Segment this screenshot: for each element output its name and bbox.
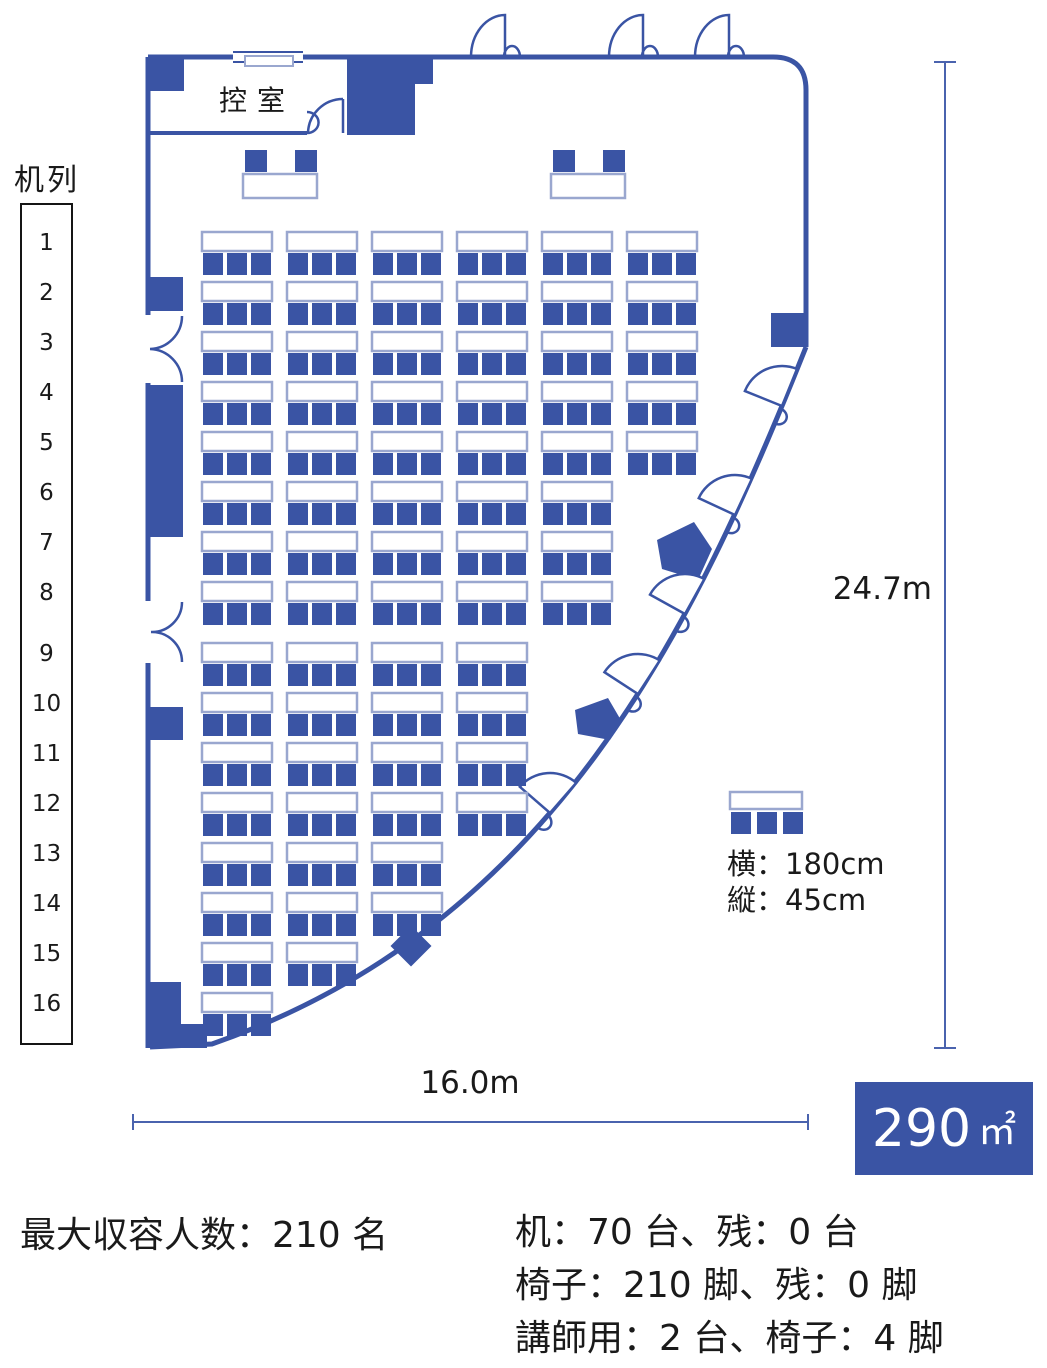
- desk-table: [287, 232, 357, 251]
- desk-chair: [567, 603, 587, 625]
- window-icon: [233, 52, 303, 66]
- desk-chair: [676, 453, 696, 475]
- desk-chair: [203, 353, 223, 375]
- desk-table: [202, 532, 272, 551]
- desk-table: [202, 993, 272, 1012]
- desk-chair: [251, 603, 271, 625]
- desk-chair: [482, 353, 502, 375]
- desk-chair: [288, 764, 308, 786]
- desk-chair: [312, 714, 332, 736]
- desk-chair: [506, 714, 526, 736]
- left-door-2-icon: [151, 602, 182, 662]
- desk-chair: [288, 453, 308, 475]
- desk-chair: [421, 453, 441, 475]
- desk-table: [287, 582, 357, 601]
- area-unit: ㎡: [978, 1112, 1016, 1150]
- desk-chair: [251, 814, 271, 836]
- desk-chair: [397, 814, 417, 836]
- desk-chair: [251, 453, 271, 475]
- desk-chair: [421, 764, 441, 786]
- desk-chair: [421, 403, 441, 425]
- lecturer-desk-2: [551, 150, 625, 198]
- desk-chair: [397, 353, 417, 375]
- desk-table: [372, 432, 442, 451]
- desk-row-number: 15: [22, 940, 71, 968]
- desk-chair: [251, 664, 271, 686]
- desk-chair: [676, 353, 696, 375]
- desk-table: [372, 643, 442, 662]
- desk-chair: [482, 603, 502, 625]
- desk-chair: [421, 814, 441, 836]
- area-value: 290: [872, 1103, 971, 1155]
- desk-chair: [373, 664, 393, 686]
- desk-chair: [227, 664, 247, 686]
- desk-chair: [506, 764, 526, 786]
- desk-rows-title: 机列: [14, 155, 80, 199]
- desk-table: [202, 943, 272, 962]
- desk-chair: [652, 303, 672, 325]
- desk-chair: [458, 403, 478, 425]
- desk-chair: [336, 503, 356, 525]
- desk-chair: [397, 403, 417, 425]
- desk-chair: [336, 303, 356, 325]
- desk-table: [372, 282, 442, 301]
- desk-chair: [227, 303, 247, 325]
- desk-table: [372, 893, 442, 912]
- wall-block-anteroom: [347, 56, 415, 135]
- desk-chair: [251, 1014, 271, 1036]
- desk-row-number: 12: [22, 790, 71, 818]
- desk-table: [287, 282, 357, 301]
- desk-chair: [312, 453, 332, 475]
- desk-chair: [482, 303, 502, 325]
- dimension-line-width: [133, 1114, 808, 1130]
- desk-table: [202, 332, 272, 351]
- desk-chair: [591, 403, 611, 425]
- desk-chair: [482, 764, 502, 786]
- desk-chair: [373, 553, 393, 575]
- desk-chair: [397, 453, 417, 475]
- desk-chair: [251, 253, 271, 275]
- desk-table: [457, 282, 527, 301]
- desk-chair: [397, 664, 417, 686]
- desk-chair: [397, 553, 417, 575]
- desk-chair: [373, 303, 393, 325]
- desk-row-number: 5: [22, 429, 71, 457]
- desk-rows-layer: [202, 232, 697, 1036]
- room-layout-page: 机列 12345678910111213141516 控室 24.7m 16.0…: [0, 0, 1047, 1368]
- desk-chair: [567, 403, 587, 425]
- desk-chair: [458, 453, 478, 475]
- desk-chair: [591, 503, 611, 525]
- desk-table: [287, 793, 357, 812]
- desk-row-index-box: 12345678910111213141516: [20, 203, 73, 1045]
- desk-table: [542, 382, 612, 401]
- desk-chair: [288, 714, 308, 736]
- desk-table: [372, 843, 442, 862]
- desk-chair: [458, 814, 478, 836]
- desk-chair: [312, 764, 332, 786]
- desk-chair: [421, 503, 441, 525]
- desk-table: [372, 332, 442, 351]
- desk-chair: [227, 914, 247, 936]
- desk-chair: [543, 453, 563, 475]
- desk-chair: [506, 603, 526, 625]
- desk-table: [202, 582, 272, 601]
- area-badge: 290 ㎡: [855, 1082, 1033, 1175]
- desk-table: [372, 793, 442, 812]
- desk-chair: [421, 603, 441, 625]
- desk-row-number: 9: [22, 640, 71, 668]
- desk-table: [202, 232, 272, 251]
- width-dimension-label: 16.0m: [395, 1065, 545, 1101]
- left-door-1-icon: [150, 316, 182, 382]
- desk-chair: [336, 253, 356, 275]
- desk-chair: [227, 553, 247, 575]
- desk-chair: [203, 403, 223, 425]
- pillar-curve-upper: [657, 522, 712, 580]
- desk-chair: [312, 503, 332, 525]
- desk-table: [372, 482, 442, 501]
- desk-chair: [373, 503, 393, 525]
- desk-chair: [458, 253, 478, 275]
- desk-chair: [288, 864, 308, 886]
- desk-chair: [312, 864, 332, 886]
- desk-chair: [506, 664, 526, 686]
- desk-table: [542, 532, 612, 551]
- desk-chair: [251, 553, 271, 575]
- desk-table: [202, 743, 272, 762]
- desk-chair: [567, 303, 587, 325]
- desk-chair: [567, 253, 587, 275]
- desk-table: [627, 332, 697, 351]
- desk-chair: [251, 714, 271, 736]
- desk-chair: [421, 253, 441, 275]
- desk-table: [457, 582, 527, 601]
- desk-table: [287, 743, 357, 762]
- desk-table: [287, 482, 357, 501]
- desk-row-number: 10: [22, 690, 71, 718]
- desk-chair: [591, 453, 611, 475]
- desk-table: [372, 382, 442, 401]
- desk-chair: [227, 603, 247, 625]
- desk-chair: [251, 503, 271, 525]
- desk-chair: [288, 964, 308, 986]
- desk-table: [457, 693, 527, 712]
- desk-table: [457, 332, 527, 351]
- desk-chair: [227, 714, 247, 736]
- desk-chair: [506, 403, 526, 425]
- desk-chair: [203, 964, 223, 986]
- desk-chair: [203, 1014, 223, 1036]
- desk-table: [457, 643, 527, 662]
- desk-chair: [203, 714, 223, 736]
- desk-chair: [543, 253, 563, 275]
- anteroom-label: 控室: [196, 79, 318, 119]
- desk-chair: [543, 403, 563, 425]
- desk-chair: [591, 353, 611, 375]
- lecturer-count-text: 講師用：2 台、椅子：4 脚: [515, 1312, 944, 1365]
- desk-chair: [288, 914, 308, 936]
- desk-chair: [336, 353, 356, 375]
- desk-chair: [676, 303, 696, 325]
- desk-chair: [373, 603, 393, 625]
- desk-chair: [421, 553, 441, 575]
- legend-depth-label: 縦：45cm: [727, 877, 866, 919]
- desk-table: [457, 793, 527, 812]
- desk-count-text: 机：70 台、残：0 台: [515, 1206, 944, 1259]
- desk-chair: [288, 553, 308, 575]
- desk-chair: [251, 914, 271, 936]
- desk-chair: [312, 664, 332, 686]
- desk-chair: [567, 453, 587, 475]
- desk-chair: [288, 603, 308, 625]
- desk-chair: [373, 714, 393, 736]
- desk-row-number: 3: [22, 329, 71, 357]
- desk-chair: [676, 403, 696, 425]
- inventory-text-block: 机：70 台、残：0 台 椅子：210 脚、残：0 脚 講師用：2 台、椅子：4…: [515, 1206, 944, 1365]
- desk-chair: [458, 303, 478, 325]
- desk-table: [202, 282, 272, 301]
- desk-chair: [203, 664, 223, 686]
- desk-chair: [336, 603, 356, 625]
- desk-chair: [543, 503, 563, 525]
- desk-table: [627, 282, 697, 301]
- desk-table: [372, 582, 442, 601]
- desk-table: [372, 532, 442, 551]
- desk-chair: [336, 553, 356, 575]
- desk-chair: [482, 714, 502, 736]
- desk-chair: [373, 353, 393, 375]
- desk-table: [542, 482, 612, 501]
- desk-chair: [458, 664, 478, 686]
- desk-chair: [373, 253, 393, 275]
- desk-chair: [543, 353, 563, 375]
- desk-chair: [373, 914, 393, 936]
- desk-chair: [506, 553, 526, 575]
- desk-chair: [251, 764, 271, 786]
- desk-chair: [312, 303, 332, 325]
- desk-chair: [203, 603, 223, 625]
- desk-chair: [203, 764, 223, 786]
- desk-table: [542, 332, 612, 351]
- desk-chair: [251, 864, 271, 886]
- desk-chair: [421, 303, 441, 325]
- desk-table: [202, 382, 272, 401]
- wall-block-left: [148, 385, 183, 537]
- desk-chair: [312, 603, 332, 625]
- desk-chair: [591, 253, 611, 275]
- wall-block-step: [415, 56, 433, 84]
- desk-chair: [336, 814, 356, 836]
- desk-chair: [652, 353, 672, 375]
- pillar-left-upper: [148, 277, 183, 311]
- top-door-2-icon: [609, 15, 658, 57]
- desk-row-number: 6: [22, 479, 71, 507]
- desk-table: [542, 282, 612, 301]
- desk-row-number: 16: [22, 990, 71, 1018]
- top-door-1-icon: [471, 15, 520, 57]
- desk-table: [627, 382, 697, 401]
- top-door-3-icon: [695, 15, 744, 57]
- desk-chair: [397, 303, 417, 325]
- desk-chair: [312, 353, 332, 375]
- desk-chair: [227, 964, 247, 986]
- desk-chair: [251, 303, 271, 325]
- desk-chair: [652, 453, 672, 475]
- desk-chair: [373, 814, 393, 836]
- desk-table: [287, 432, 357, 451]
- desk-chair: [567, 353, 587, 375]
- desk-chair: [227, 764, 247, 786]
- desk-table: [542, 232, 612, 251]
- desk-chair: [288, 664, 308, 686]
- desk-table: [287, 943, 357, 962]
- desk-chair: [482, 503, 502, 525]
- desk-table: [202, 793, 272, 812]
- desk-chair: [227, 1014, 247, 1036]
- desk-chair: [458, 714, 478, 736]
- desk-table: [287, 643, 357, 662]
- desk-chair: [251, 353, 271, 375]
- desk-chair: [628, 253, 648, 275]
- desk-chair: [312, 814, 332, 836]
- pillar-curve-lower: [575, 698, 622, 740]
- dimension-line-height: [934, 62, 956, 1048]
- desk-chair: [336, 403, 356, 425]
- desk-table: [372, 743, 442, 762]
- desk-chair: [397, 503, 417, 525]
- desk-chair: [251, 964, 271, 986]
- desk-chair: [543, 603, 563, 625]
- desk-table: [202, 893, 272, 912]
- desk-table: [457, 482, 527, 501]
- desk-chair: [336, 664, 356, 686]
- desk-chair: [203, 503, 223, 525]
- desk-chair: [227, 253, 247, 275]
- desk-chair: [543, 303, 563, 325]
- desk-chair: [543, 553, 563, 575]
- desk-table: [372, 232, 442, 251]
- desk-chair: [591, 303, 611, 325]
- desk-row-number: 7: [22, 529, 71, 557]
- desk-chair: [482, 253, 502, 275]
- desk-table: [287, 332, 357, 351]
- desk-chair: [336, 714, 356, 736]
- desk-row-number: 2: [22, 279, 71, 307]
- desk-table: [202, 693, 272, 712]
- desk-chair: [203, 253, 223, 275]
- desk-chair: [421, 664, 441, 686]
- desk-chair: [203, 553, 223, 575]
- desk-chair: [373, 453, 393, 475]
- desk-row-number: 14: [22, 890, 71, 918]
- desk-chair: [567, 503, 587, 525]
- desk-chair: [567, 553, 587, 575]
- desk-row-number: 13: [22, 840, 71, 868]
- desk-chair: [591, 603, 611, 625]
- desk-chair: [227, 503, 247, 525]
- desk-chair: [628, 353, 648, 375]
- desk-table: [287, 532, 357, 551]
- desk-table: [627, 432, 697, 451]
- desk-chair: [482, 453, 502, 475]
- desk-chair: [482, 664, 502, 686]
- desk-chair: [288, 814, 308, 836]
- pillar-bottom-left: [148, 982, 207, 1048]
- desk-chair: [506, 353, 526, 375]
- desk-table: [457, 532, 527, 551]
- pillar-top-left: [148, 55, 184, 91]
- desk-chair: [652, 403, 672, 425]
- desk-chair: [288, 403, 308, 425]
- desk-chair: [397, 714, 417, 736]
- desk-table: [457, 232, 527, 251]
- desk-chair: [421, 353, 441, 375]
- pillar-left-lower: [148, 707, 183, 740]
- desk-chair: [312, 914, 332, 936]
- desk-chair: [203, 814, 223, 836]
- desk-chair: [628, 453, 648, 475]
- desk-chair: [336, 914, 356, 936]
- desk-chair: [628, 403, 648, 425]
- desk-table: [627, 232, 697, 251]
- desk-chair: [676, 253, 696, 275]
- pillar-right-wall: [771, 313, 806, 347]
- desk-chair: [397, 764, 417, 786]
- desk-table: [287, 893, 357, 912]
- desk-chair: [397, 914, 417, 936]
- desk-row-number: 8: [22, 579, 71, 607]
- desk-table: [287, 693, 357, 712]
- desk-chair: [506, 453, 526, 475]
- desk-row-number: 1: [22, 229, 71, 257]
- desk-table: [542, 582, 612, 601]
- desk-chair: [312, 553, 332, 575]
- desk-table: [457, 743, 527, 762]
- desk-chair: [373, 764, 393, 786]
- desk-chair: [628, 303, 648, 325]
- desk-chair: [421, 714, 441, 736]
- chair-count-text: 椅子：210 脚、残：0 脚: [515, 1259, 944, 1312]
- desk-chair: [312, 253, 332, 275]
- desk-chair: [227, 864, 247, 886]
- desk-table: [457, 432, 527, 451]
- desk-chair: [288, 503, 308, 525]
- desk-table: [542, 432, 612, 451]
- desk-chair: [506, 814, 526, 836]
- desk-chair: [397, 603, 417, 625]
- desk-row-number: 11: [22, 740, 71, 768]
- desk-chair: [482, 814, 502, 836]
- side-door-1-icon: [738, 354, 806, 427]
- desk-chair: [373, 403, 393, 425]
- capacity-text: 最大収容人数：210 名: [20, 1206, 388, 1258]
- desk-chair: [458, 553, 478, 575]
- desk-chair: [288, 353, 308, 375]
- desk-chair: [397, 253, 417, 275]
- desk-table: [202, 432, 272, 451]
- desk-chair: [227, 353, 247, 375]
- desk-chair: [312, 964, 332, 986]
- desk-row-number: 4: [22, 379, 71, 407]
- desk-chair: [203, 914, 223, 936]
- desk-chair: [203, 303, 223, 325]
- desk-table: [202, 482, 272, 501]
- desk-chair: [421, 864, 441, 886]
- desk-chair: [652, 253, 672, 275]
- desk-chair: [227, 814, 247, 836]
